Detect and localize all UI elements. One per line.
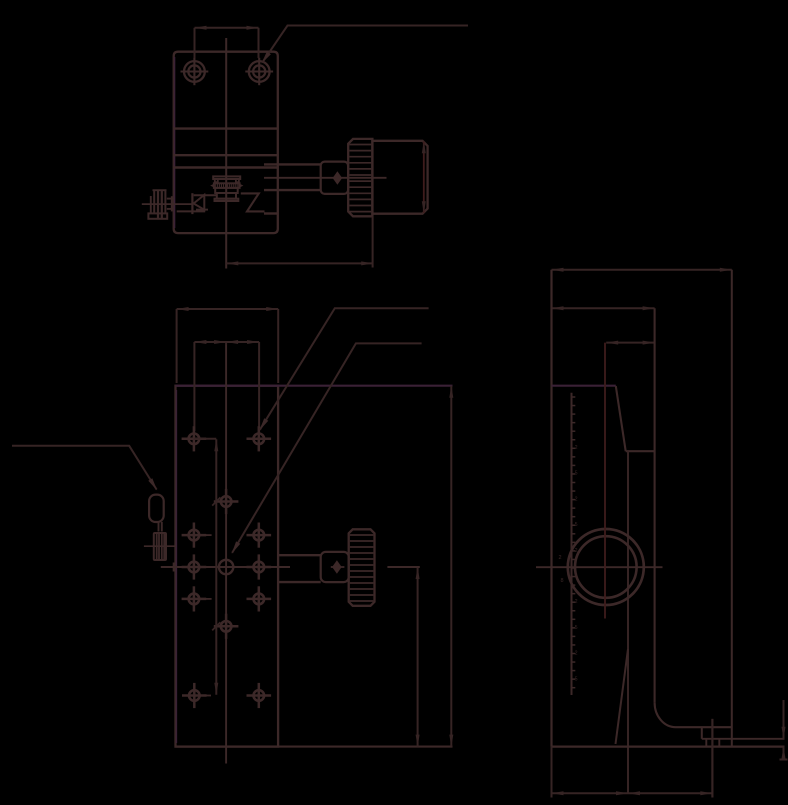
svg-text:5: 5 [575, 676, 578, 682]
svg-text:2: 2 [575, 548, 578, 554]
svg-text:2: 2 [575, 651, 578, 657]
svg-text:2: 2 [575, 445, 578, 451]
svg-text:5: 5 [575, 574, 578, 580]
svg-text:8: 8 [561, 578, 564, 584]
svg-text:5: 5 [575, 625, 578, 631]
svg-text:5: 5 [575, 471, 578, 477]
svg-text:5: 5 [575, 522, 578, 528]
svg-text:2: 2 [575, 599, 578, 605]
svg-text:2: 2 [559, 555, 562, 561]
svg-text:2: 2 [575, 496, 578, 502]
